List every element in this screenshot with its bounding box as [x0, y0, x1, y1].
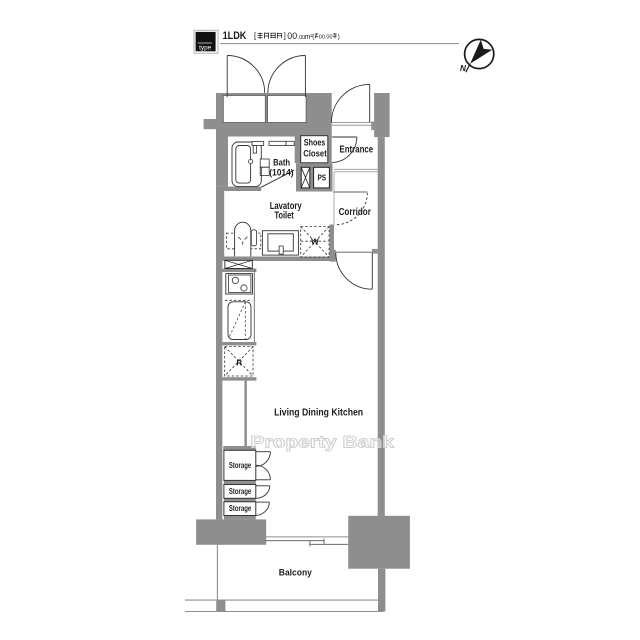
svg-text:(: ( [312, 34, 315, 41]
svg-text:Storage: Storage [229, 487, 252, 496]
svg-text:Closet: Closet [303, 149, 327, 159]
svg-text:type: type [199, 44, 212, 51]
svg-text:]: ] [284, 32, 286, 41]
svg-text:Corridor: Corridor [339, 207, 371, 218]
svg-text:(1014): (1014) [269, 168, 293, 178]
svg-text:1LDK: 1LDK [223, 30, 247, 42]
svg-text:): ) [338, 34, 340, 41]
svg-text:Balcony: Balcony [279, 568, 313, 579]
svg-text:W: W [311, 238, 319, 247]
svg-text:Living Dining Kitchen: Living Dining Kitchen [274, 407, 363, 418]
svg-text:[: [ [254, 32, 257, 41]
svg-text:00: 00 [287, 31, 297, 42]
svg-text:PS: PS [318, 174, 327, 183]
svg-text:Shoes: Shoes [304, 138, 326, 148]
svg-text:Property Bank: Property Bank [250, 434, 395, 452]
svg-text:R: R [236, 358, 242, 367]
svg-text:Storage: Storage [229, 461, 252, 470]
svg-text:00.00: 00.00 [319, 35, 333, 41]
svg-text:Storage: Storage [229, 504, 252, 513]
svg-text:Entrance: Entrance [340, 145, 374, 156]
svg-text:Toilet: Toilet [275, 211, 295, 222]
